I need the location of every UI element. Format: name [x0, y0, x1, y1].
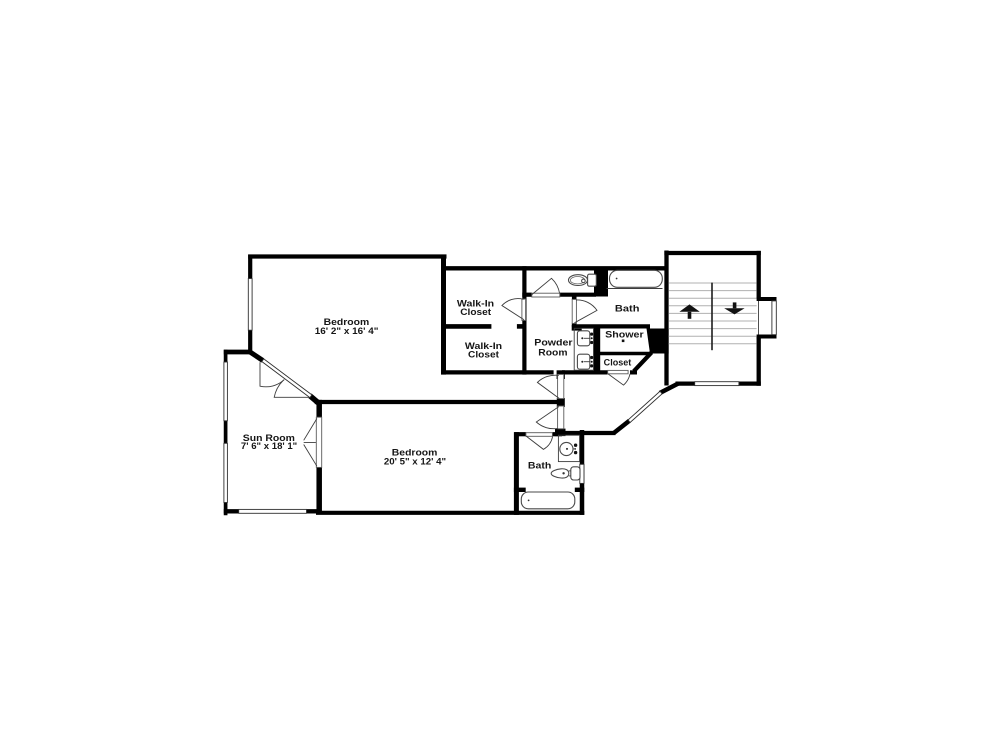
svg-text:Closet: Closet [604, 358, 632, 368]
svg-text:7' 6" x 18' 1": 7' 6" x 18' 1" [241, 441, 297, 451]
svg-text:Powder: Powder [534, 338, 573, 348]
svg-text:Closet: Closet [468, 350, 499, 360]
svg-text:Room: Room [538, 348, 567, 358]
svg-text:Closet: Closet [460, 307, 491, 317]
svg-text:20' 5" x 12' 4": 20' 5" x 12' 4" [384, 457, 446, 467]
svg-text:Bath: Bath [615, 304, 640, 314]
svg-text:16' 2" x 16' 4": 16' 2" x 16' 4" [315, 326, 379, 336]
svg-text:Bath: Bath [528, 460, 551, 470]
svg-text:Shower: Shower [605, 329, 644, 339]
